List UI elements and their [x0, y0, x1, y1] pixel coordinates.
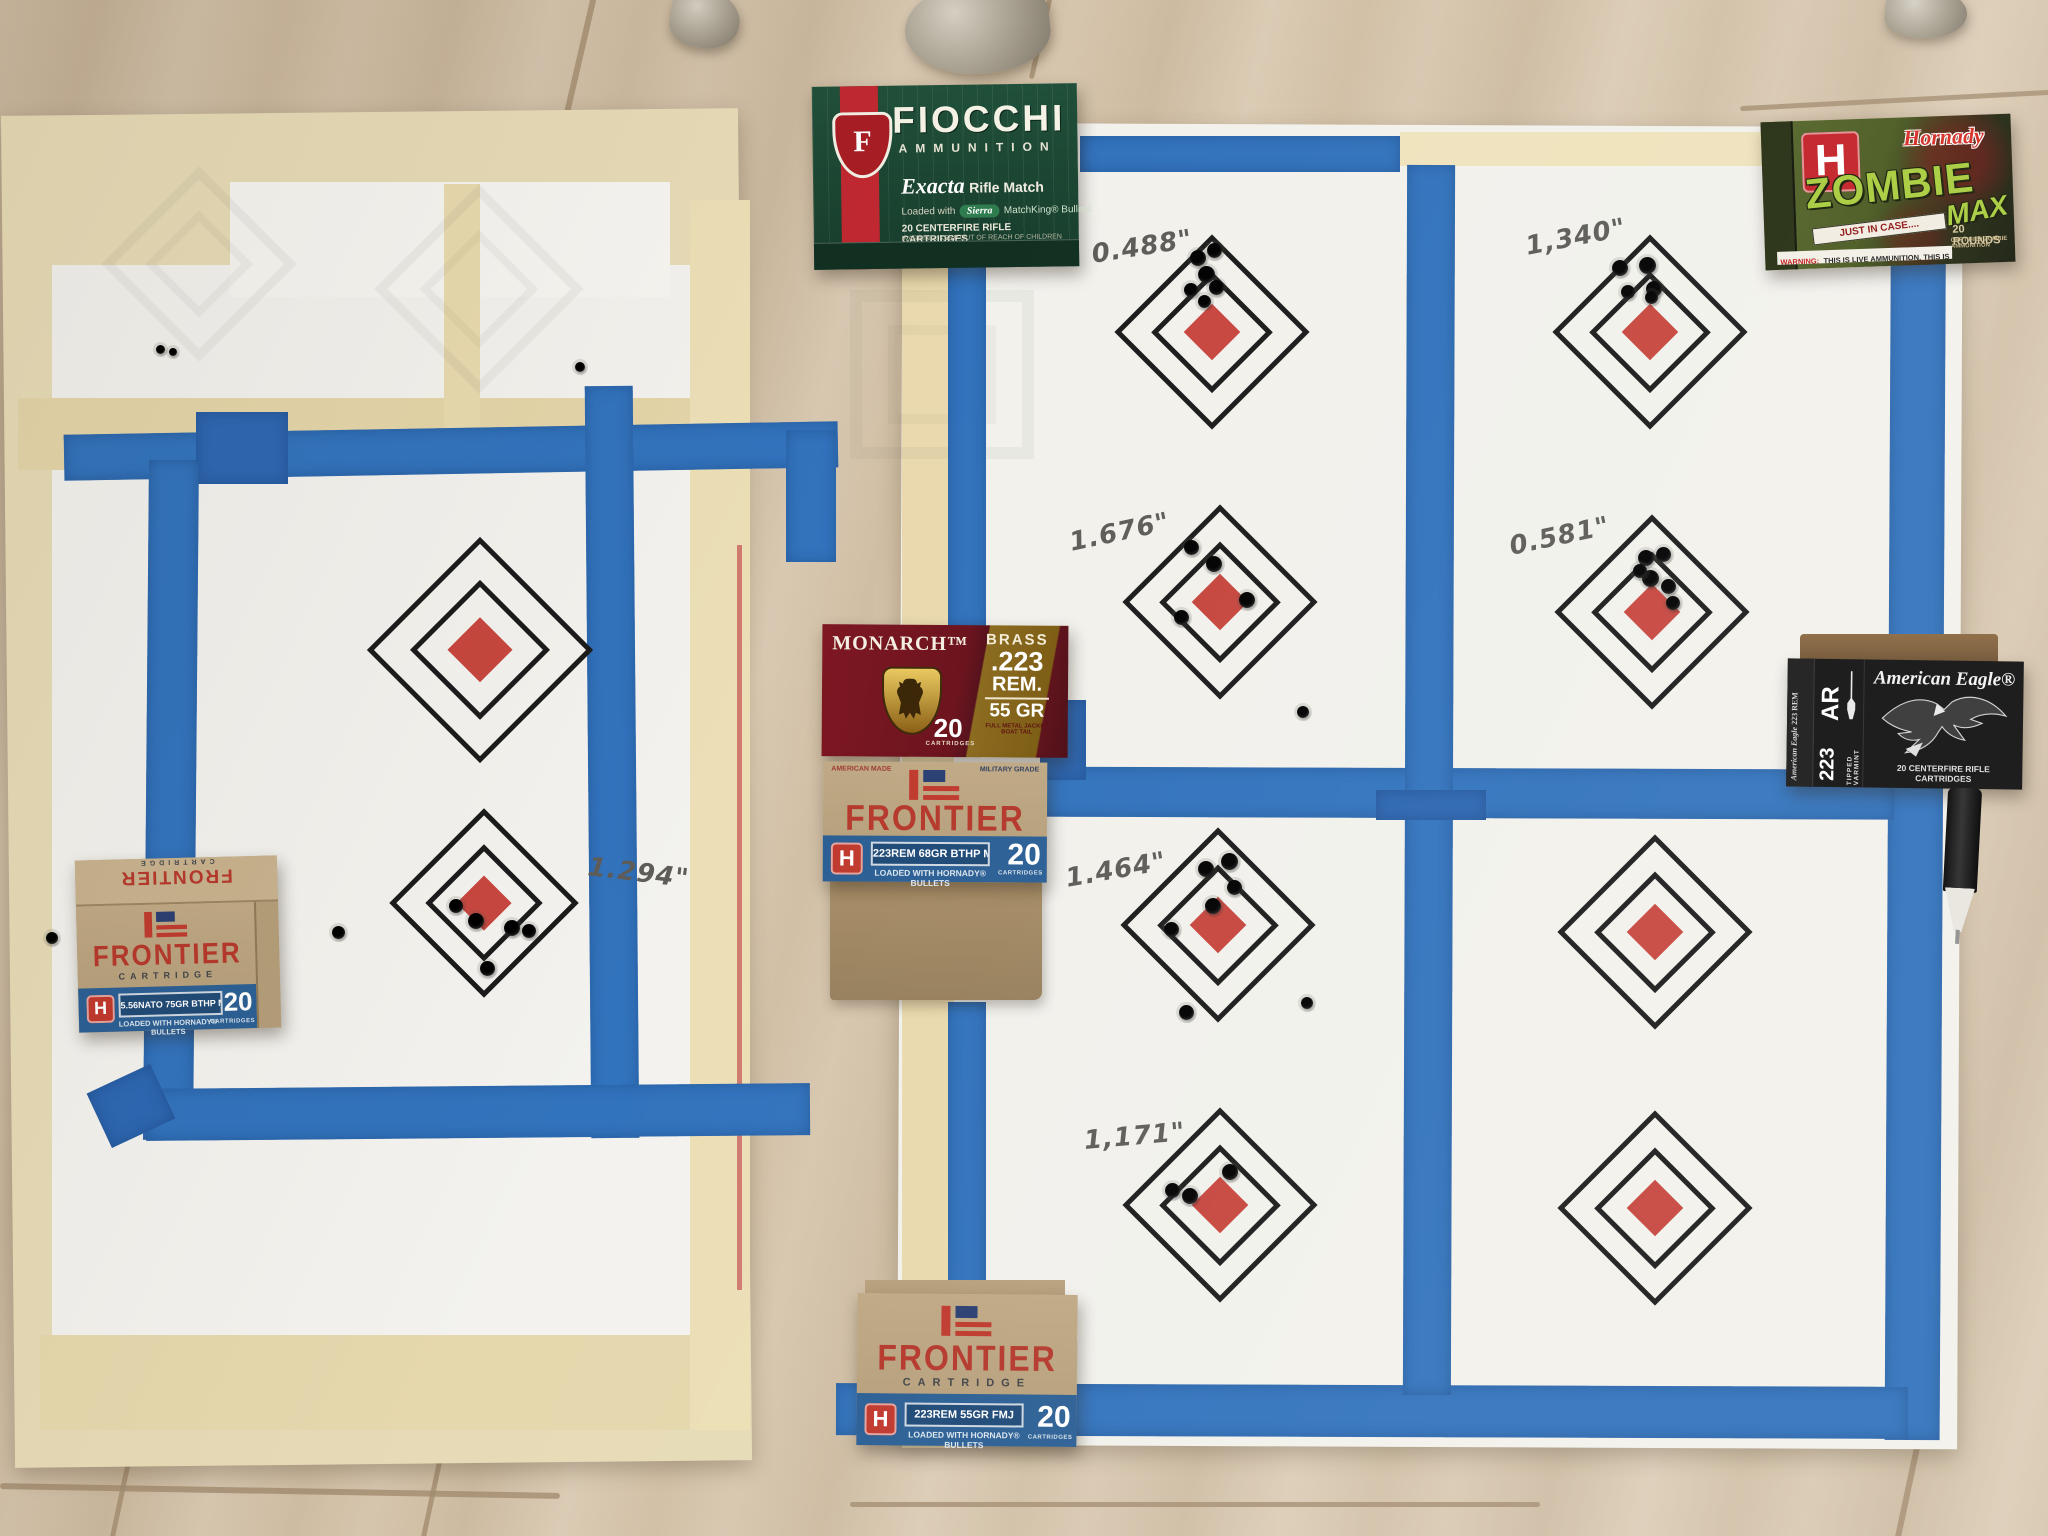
- ae-ar: AR: [1817, 667, 1846, 721]
- fiocchi-ammo-box: F FIOCCHI AMMUNITION Exacta Rifle Match …: [812, 83, 1080, 270]
- flag-stripe: [955, 1322, 991, 1327]
- bullet-hole: [1612, 260, 1628, 276]
- frontier-box-side-panel: [254, 901, 281, 1028]
- bullet-hole: [1666, 596, 1680, 610]
- bullet-hole: [1239, 592, 1255, 608]
- bullet-hole: [1198, 295, 1211, 308]
- ae-tipped-varmint: TIPPED VARMINT: [1846, 725, 1861, 785]
- frontier-spec: 223REM 68GR BTHP MATCH: [871, 842, 990, 867]
- frontier-blue-band: H 5.56NATO 75GR BTHP MATCH LOADED WITH H…: [78, 984, 259, 1033]
- bullet-hole: [1639, 257, 1656, 274]
- frontier-brand: FRONTIER: [857, 1337, 1077, 1380]
- frontier-face: FRONTIER CARTRIDGE H 5.56NATO 75GR BTHP …: [76, 902, 259, 1033]
- american-eagle-side-panel: American Eagle 223 REM: [1786, 658, 1815, 786]
- zombie-warning-strip: WARNING: THIS IS LIVE AMMUNITION. THIS I…: [1777, 246, 1952, 265]
- bullet-hole: [1184, 540, 1199, 555]
- zombie-warning-label: WARNING:: [1780, 256, 1819, 264]
- frontier-count-label: CARTRIDGES: [998, 870, 1043, 876]
- side-panel-text: American Eagle 223 REM: [1789, 664, 1800, 780]
- grout-line: [850, 1502, 1540, 1507]
- sierra-badge: Sierra: [960, 204, 1000, 218]
- bullet-hole: [480, 961, 495, 976]
- frontier-blue-band: H 223REM 55GR FMJ LOADED WITH HORNADY® B…: [856, 1393, 1076, 1447]
- masking-tape: [40, 1335, 705, 1430]
- tape-strip: [143, 460, 199, 1140]
- bullet-hole: [449, 899, 463, 913]
- bullet-hole: [1633, 564, 1647, 578]
- flag-canton: [923, 770, 945, 782]
- flag-canton: [156, 911, 175, 922]
- fiocchi-box-edge: [814, 239, 1079, 270]
- side-brand: American Eagle: [1789, 727, 1799, 781]
- frontier-count: 20: [1007, 838, 1041, 872]
- bullet-hole: [1661, 579, 1676, 594]
- flag-canton: [955, 1306, 977, 1318]
- tape-strip: [1080, 136, 1400, 172]
- hornady-h-logo: H: [831, 842, 863, 874]
- paper-watermark: [850, 290, 1034, 459]
- frontier-loaded-text: LOADED WITH HORNADY® BULLETS: [896, 1429, 1031, 1450]
- zombie-max-ammo-box: H Hornady ZOMBIE MAX JUST IN CASE.... 20…: [1760, 114, 2015, 271]
- photo-scene: 0.488" 1,340" 1.676" 0.581" 1.464" 1,171…: [0, 0, 2048, 1536]
- bullet-hole: [1222, 1164, 1238, 1180]
- tape-strip: [786, 430, 836, 562]
- flag-bar: [941, 1306, 950, 1336]
- monarch-gold-panel: BRASS .223 REM. 55 GR FULL METAL JACKET …: [977, 625, 1058, 758]
- frontier-brand: FRONTIER: [823, 797, 1047, 840]
- hornady-h-logo: H: [86, 995, 115, 1024]
- frontier-flag-logo: [144, 911, 189, 938]
- bullet-hole: [1205, 898, 1221, 914]
- frontier-spec: 5.56NATO 75GR BTHP MATCH: [118, 991, 223, 1018]
- bullet-hole: [1190, 250, 1206, 266]
- fiocchi-loaded-prefix: Loaded with: [901, 206, 955, 218]
- zombie-box-end: [1760, 121, 1797, 270]
- bullet-hole: [1206, 556, 1222, 572]
- frontier-flag-logo: [909, 770, 961, 800]
- frontier-count-label: CARTRIDGES: [210, 1018, 255, 1025]
- eagle-graphic: [1870, 690, 2017, 768]
- flag-stripe: [923, 786, 959, 791]
- tape-strip: [1403, 165, 1455, 1395]
- bullet-hole: [522, 924, 536, 938]
- bullet-hole: [1184, 283, 1198, 297]
- frontier-open-lid: FRONTIER CARTRIDGE: [75, 855, 278, 906]
- frontier-military-grade: MILITARY GRADE: [980, 766, 1039, 773]
- frontier-ammo-box-middle: AMERICAN MADE MILITARY GRADE FRONTIER CA…: [823, 761, 1048, 882]
- bullet-hole: [1182, 1188, 1198, 1204]
- fiocchi-sub: AMMUNITION: [899, 139, 1057, 155]
- tape-strip: [1376, 790, 1486, 820]
- frontier-count: 20: [1037, 1401, 1071, 1435]
- side-cal: 223 REM: [1790, 692, 1799, 725]
- fiocchi-loaded-line: Loaded with Sierra MatchKing® Bullets: [901, 199, 1091, 220]
- bullet-hole: [169, 348, 177, 356]
- bullet-hole: [1621, 285, 1635, 299]
- flag-bar: [909, 770, 918, 800]
- monarch-bullet-type: FULL METAL JACKET BOAT TAIL: [977, 723, 1057, 736]
- frontier-flag-logo: [941, 1306, 993, 1336]
- bullet-hole: [1656, 547, 1671, 562]
- monarch-lion-shield: [884, 669, 940, 733]
- fiocchi-loaded-suffix: MatchKing® Bullets: [1004, 204, 1092, 216]
- bullet-hole: [1198, 861, 1214, 877]
- american-eagle-brand: American Eagle®: [1869, 668, 2019, 692]
- bullet-hole: [156, 345, 165, 354]
- bullet-hole: [1209, 280, 1224, 295]
- fiocchi-line: Exacta Rifle Match: [901, 172, 1044, 200]
- monarch-ammo-box: MONARCH™ 20 CARTRIDGES BRASS .223 REM. 5…: [822, 624, 1069, 758]
- monarch-count: 20: [934, 713, 963, 744]
- monarch-brand: MONARCH™: [832, 632, 962, 656]
- monarch-grain: 55 GR: [977, 699, 1057, 724]
- seam-red-line: [737, 545, 742, 1290]
- frontier-brand: FRONTIER: [77, 935, 258, 974]
- bullet-hole: [1164, 922, 1179, 937]
- frontier-ammo-box-left: FRONTIER CARTRIDGE FRONTIER CARTRIDGE H …: [75, 855, 281, 1032]
- bullet-hole: [1179, 1005, 1194, 1020]
- rifle-silhouette-icon: [1843, 667, 1860, 723]
- flag-bar: [144, 912, 152, 938]
- bullet-hole: [468, 913, 484, 929]
- frontier-american-made: AMERICAN MADE: [831, 765, 891, 772]
- frontier-loaded-text: LOADED WITH HORNADY® BULLETS: [113, 1017, 223, 1038]
- bullet-hole: [1227, 880, 1242, 895]
- bullet-hole: [1207, 243, 1222, 258]
- frontier-loaded-text: LOADED WITH HORNADY® BULLETS: [863, 868, 998, 889]
- bullet-hole: [1645, 291, 1658, 304]
- american-eagle-ammo-box: American Eagle 223 REM AR 223 TIPPED VAR…: [1786, 658, 2024, 789]
- hornady-script: Hornady: [1903, 123, 1985, 152]
- frontier-blue-band: H 223REM 68GR BTHP MATCH LOADED WITH HOR…: [823, 835, 1047, 882]
- tape-strip: [196, 412, 288, 484]
- fiocchi-exacta: Exacta: [901, 173, 965, 199]
- hornady-h-logo: H: [864, 1403, 896, 1435]
- pen-body: [1943, 787, 1982, 893]
- frontier-ammo-box-bottom: FRONTIER CARTRIDGE H 223REM 55GR FMJ LOA…: [856, 1293, 1077, 1447]
- zombie-banner: JUST IN CASE....: [1812, 212, 1947, 245]
- monarch-cal1: .223: [977, 648, 1057, 675]
- tape-strip: [146, 1083, 810, 1141]
- bullet-hole: [332, 926, 345, 939]
- cardboard-underbox: [830, 876, 1042, 1000]
- pen-tip-cone: [1943, 887, 1975, 933]
- frontier-count-label: CARTRIDGES: [1028, 1435, 1073, 1441]
- ae-cartridge-count: 20 CENTERFIRE RIFLE CARTRIDGES: [1868, 762, 2018, 784]
- zombie-certified: CERTIFIED ZOMBIE AMMUNITION: [1951, 236, 2011, 250]
- tape-strip: [585, 386, 640, 1138]
- bullet-hole: [1221, 853, 1238, 870]
- fiocchi-rifle-match: Rifle Match: [969, 179, 1044, 196]
- monarch-count-label: CARTRIDGES: [926, 741, 976, 747]
- monarch-cal2: REM.: [985, 674, 1049, 699]
- bullet-hole: [1297, 706, 1309, 718]
- frontier-count: 20: [223, 986, 253, 1018]
- zombie-warning-text: THIS IS LIVE AMMUNITION. THIS IS NOT A T…: [1823, 250, 1952, 265]
- bullet-hole: [1301, 997, 1313, 1009]
- flag-stripe: [156, 925, 187, 930]
- flag-stripe: [955, 1331, 991, 1336]
- ae-ar-strip: AR 223 TIPPED VARMINT: [1814, 659, 1865, 788]
- bullet-hole: [575, 362, 585, 372]
- bullet-hole: [1165, 1183, 1180, 1198]
- frontier-spec: 223REM 55GR FMJ: [905, 1402, 1024, 1427]
- bullet-hole: [1174, 610, 1189, 625]
- lion-rampant-icon: [892, 673, 932, 725]
- pen-tip: [1955, 930, 1960, 944]
- ae-cal: 223: [1816, 721, 1840, 781]
- bullet-hole: [504, 920, 520, 936]
- bullet-hole: [46, 932, 58, 944]
- fiocchi-brand: FIOCCHI: [892, 97, 1066, 141]
